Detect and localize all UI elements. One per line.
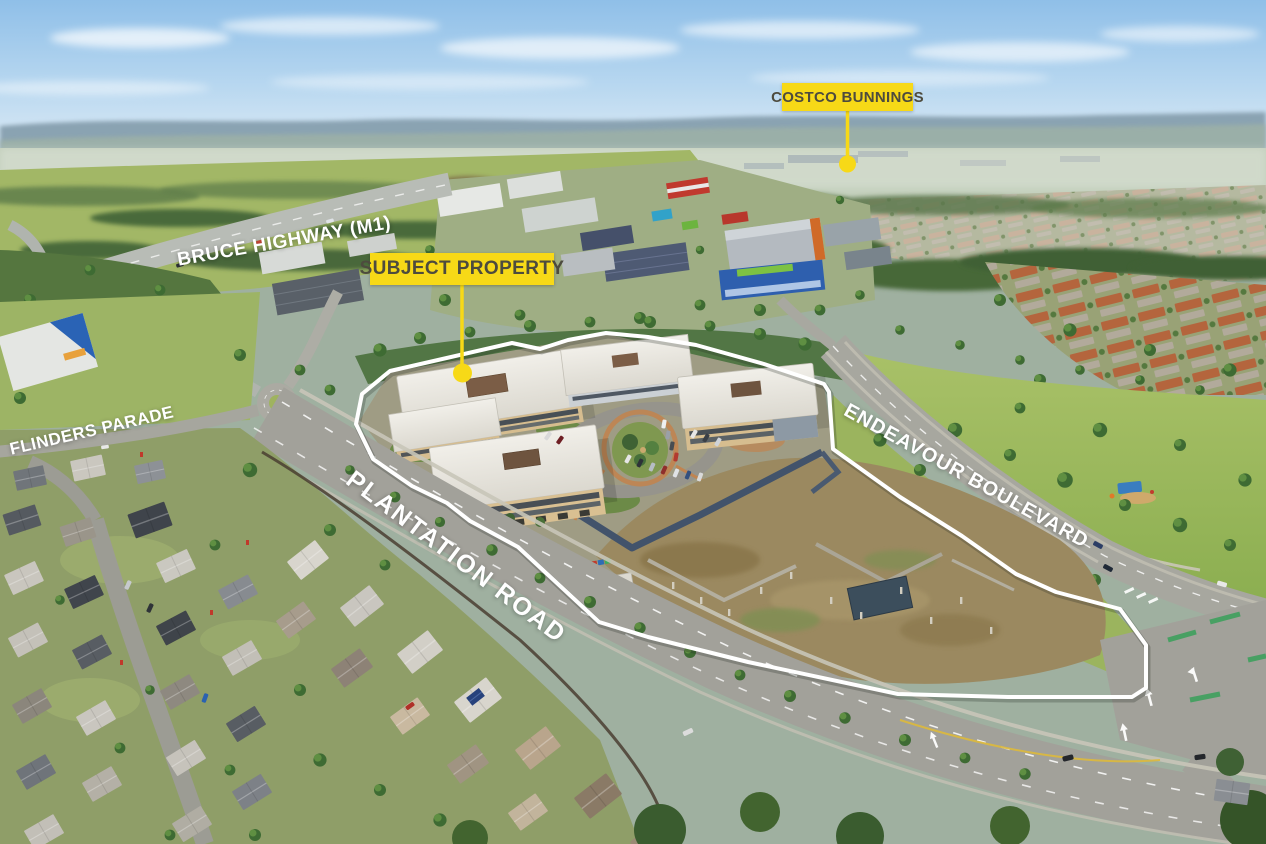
costco-bunnings-label: COSTCO BUNNINGS (782, 83, 913, 111)
subject-property-label: SUBJECT PROPERTY (370, 253, 554, 285)
aerial-property-photo: COSTCO BUNNINGS SUBJECT PROPERTY BRUCE H… (0, 0, 1266, 844)
aerial-photo-scene (0, 0, 1266, 844)
